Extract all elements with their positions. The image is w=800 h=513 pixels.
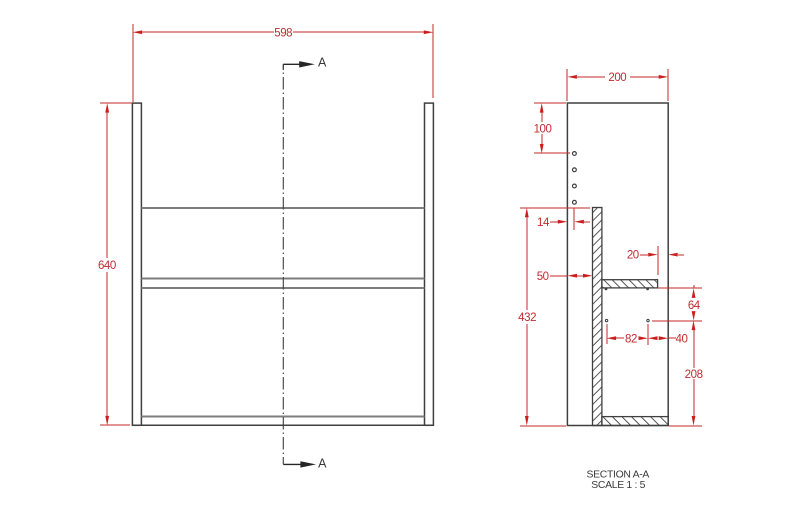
svg-text:200: 200 xyxy=(608,72,626,84)
svg-text:208: 208 xyxy=(685,369,703,381)
svg-text:82: 82 xyxy=(625,334,637,346)
svg-text:A: A xyxy=(318,56,327,70)
svg-text:50: 50 xyxy=(537,271,549,283)
svg-text:64: 64 xyxy=(688,300,701,312)
svg-text:SCALE 1 : 5: SCALE 1 : 5 xyxy=(591,480,645,491)
svg-text:A: A xyxy=(318,456,327,470)
svg-text:20: 20 xyxy=(627,250,639,262)
svg-text:100: 100 xyxy=(534,124,552,136)
svg-text:40: 40 xyxy=(676,334,688,346)
svg-text:640: 640 xyxy=(98,260,116,272)
svg-text:14: 14 xyxy=(537,217,550,229)
svg-text:432: 432 xyxy=(518,312,536,324)
svg-text:598: 598 xyxy=(274,28,292,40)
svg-text:SECTION A-A: SECTION A-A xyxy=(587,469,650,480)
